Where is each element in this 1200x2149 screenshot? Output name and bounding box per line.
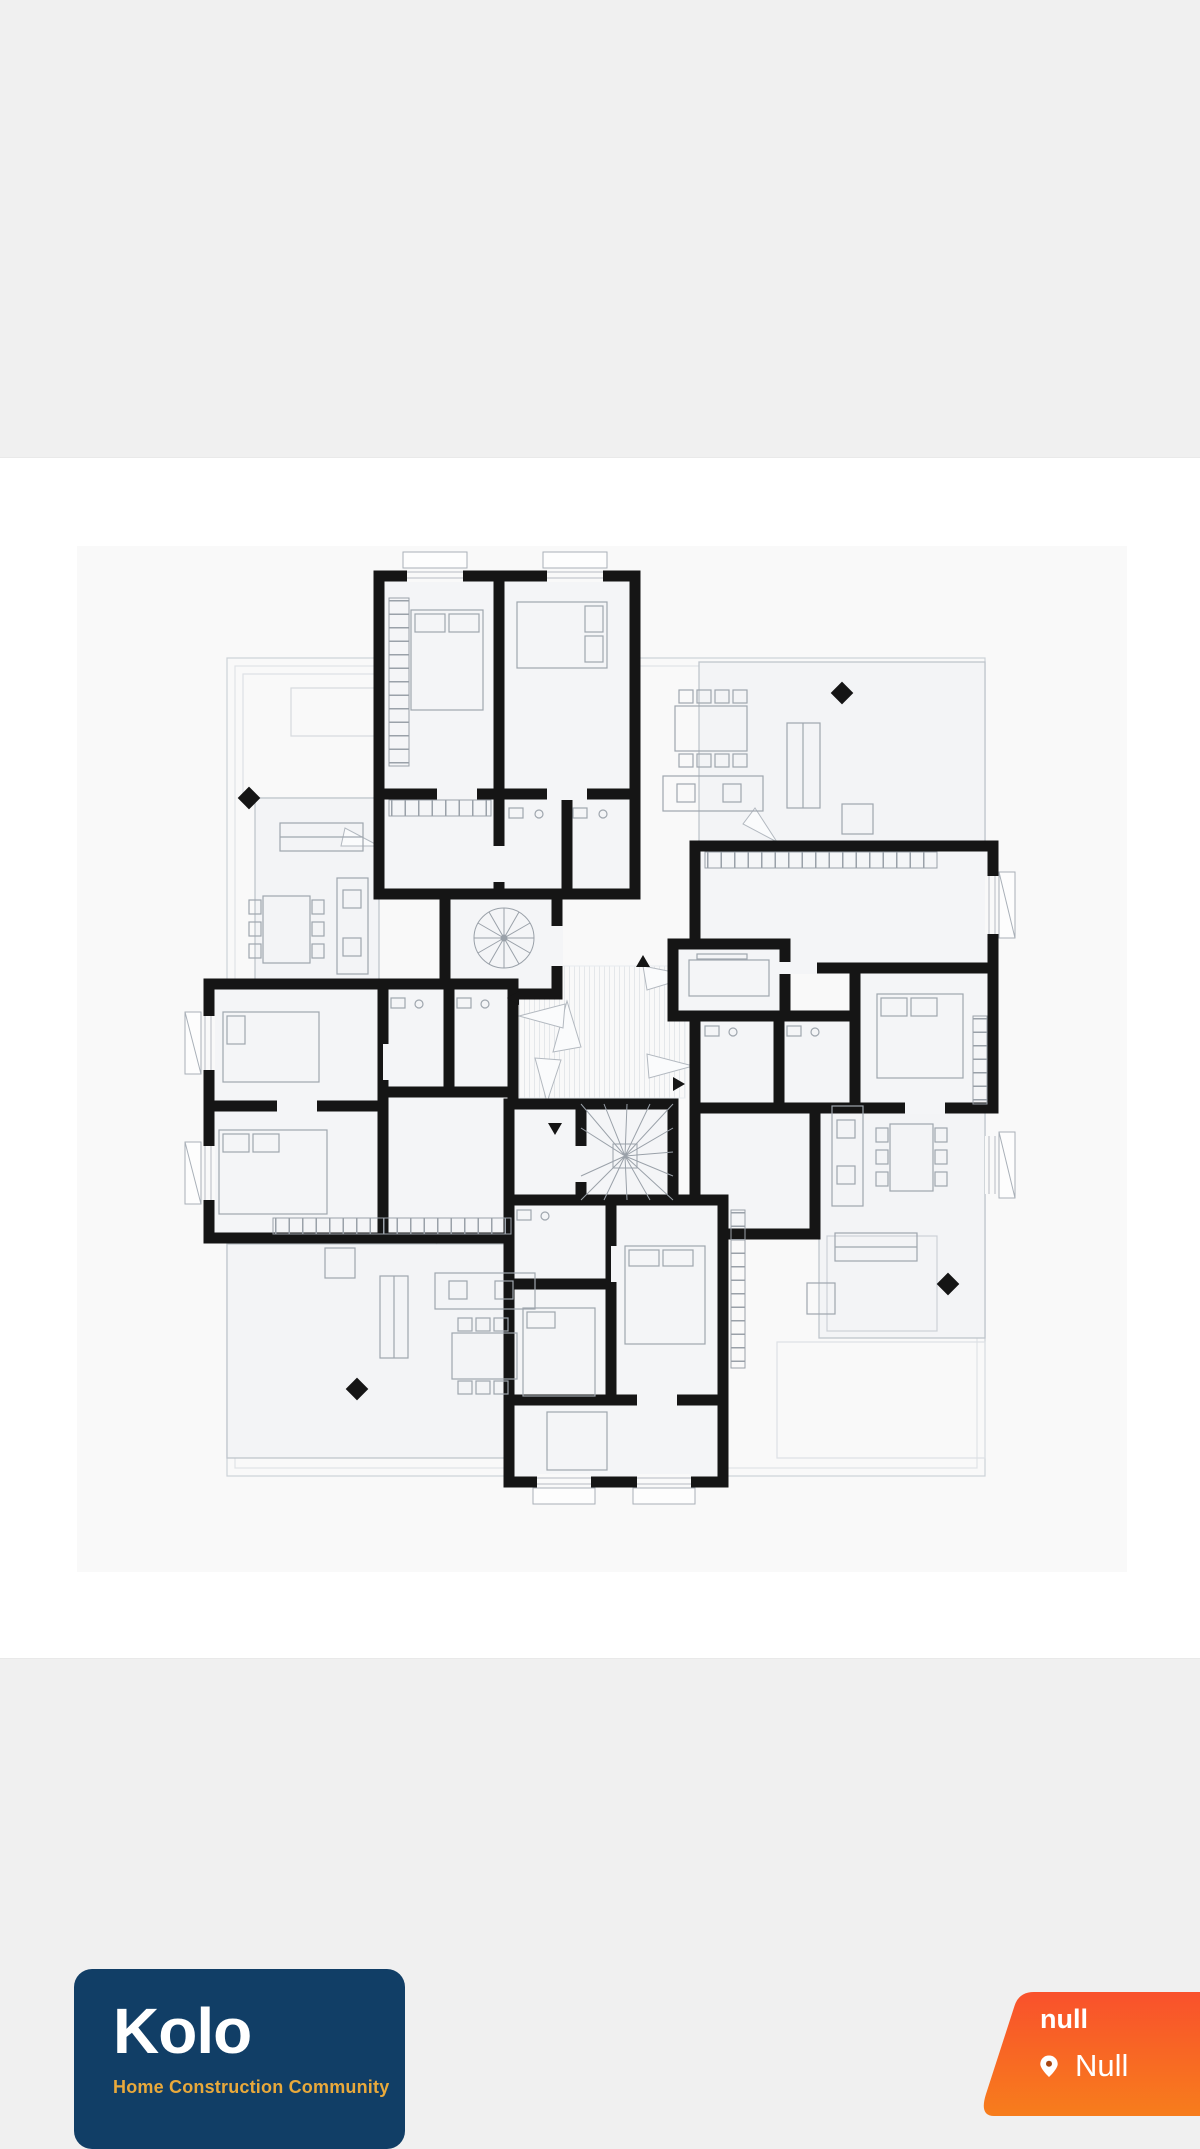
page: { "page": { "background_color": "#f0f0f0… <box>0 0 1200 2116</box>
badge-location-text: Null <box>1075 2048 1128 2084</box>
location-pin-icon <box>1036 2053 1062 2079</box>
content-band <box>0 457 1200 1659</box>
spiral-stair <box>474 908 534 968</box>
walls-left-unit <box>209 984 513 1238</box>
brand-name: Kolo <box>113 1999 405 2063</box>
location-badge[interactable]: null Null <box>970 1992 1200 2116</box>
badge-location-row: Null <box>1036 2048 1128 2084</box>
brand-logo-card[interactable]: Kolo Home Construction Community <box>74 1969 405 2149</box>
brand-tagline: Home Construction Community <box>113 2077 405 2098</box>
floor-plan-figure[interactable] <box>77 546 1127 1572</box>
badge-title: null <box>1040 2004 1088 2035</box>
floor-plan-image <box>77 546 1127 1572</box>
